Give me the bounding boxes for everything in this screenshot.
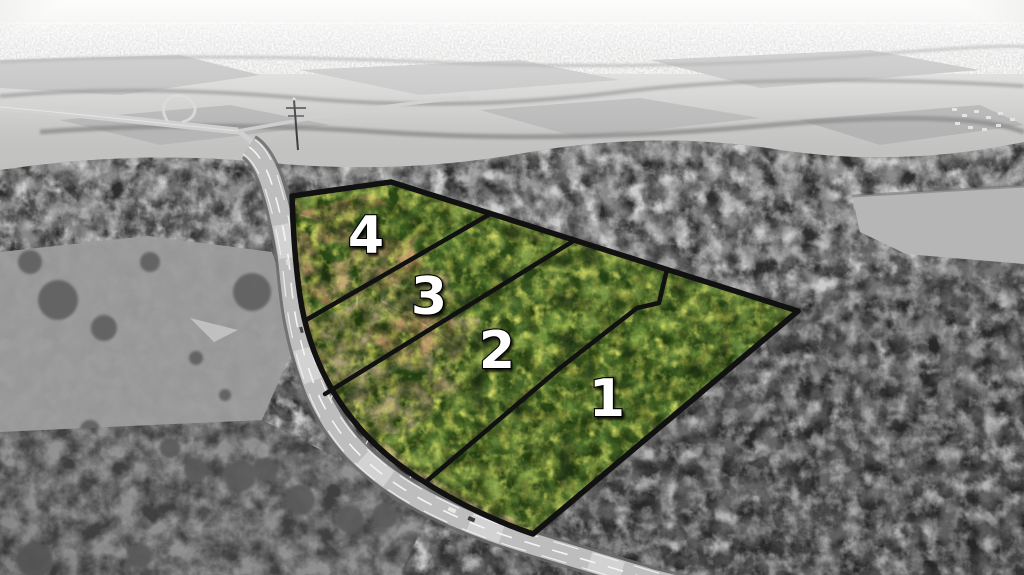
aerial-photo-svg: 4 3 2 1 xyxy=(0,0,1024,575)
aerial-photo: 4 3 2 1 xyxy=(0,0,1024,575)
vignette xyxy=(0,0,1024,575)
